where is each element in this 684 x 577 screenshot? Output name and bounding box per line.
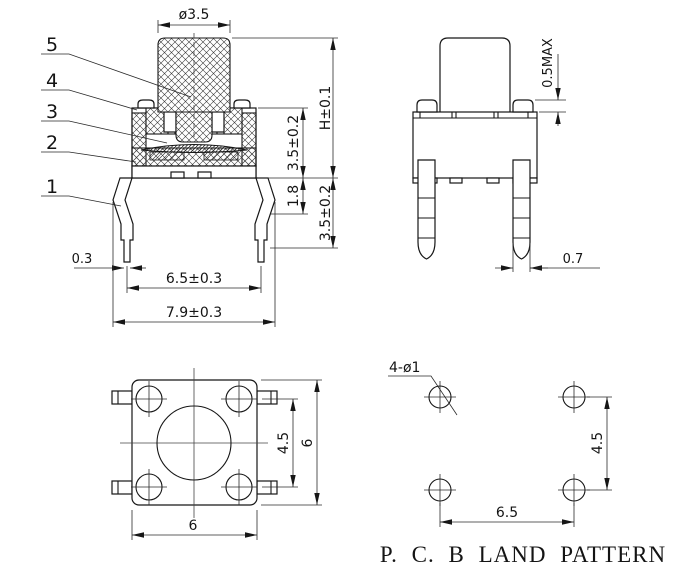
part-label-2: 2: [46, 132, 58, 154]
dim-top-body-width: 6: [189, 518, 198, 534]
dim-pin-thickness: 0.7: [563, 252, 584, 267]
part-label-1: 1: [46, 176, 58, 198]
top-tab-right-lower: [257, 481, 277, 494]
dim-stem-diameter: ø3.5: [179, 7, 210, 23]
dim-pin-length: 3.5±0.2: [318, 185, 334, 241]
part-label-4: 4: [46, 70, 58, 92]
dim-top-body-depth: 6: [300, 438, 316, 447]
dim-total-height: H±0.1: [318, 86, 334, 131]
dim-hole-callout: 4-ø1: [389, 360, 420, 376]
side-stem: [440, 38, 510, 112]
front-section-view: ø3.5 H±0.1 3.5±0.2 1.8 3.5±0.2 0.3 6.5±0…: [41, 7, 338, 327]
top-tab-left-upper: [112, 391, 132, 404]
part-label-3: 3: [46, 101, 58, 123]
base-bottom-plate: [132, 166, 256, 178]
contact-strip-left: [150, 152, 184, 160]
pcb-land-pattern-title: P. C. B LAND PATTERN: [380, 542, 666, 567]
top-tab-left-lower: [112, 481, 132, 494]
top-tab-right-upper: [257, 391, 277, 404]
pcb-land-pattern: 4-ø1 4.5 6.5 P. C. B LAND PATTERN: [380, 360, 666, 567]
hole-callout-leader: [388, 376, 457, 415]
bottom-notch-left: [171, 172, 184, 178]
pcb-holes: [424, 381, 590, 506]
part-label-5: 5: [46, 34, 58, 56]
drawing-sheet: ø3.5 H±0.1 3.5±0.2 1.8 3.5±0.2 0.3 6.5±0…: [0, 0, 684, 577]
dim-top-pin-row-pitch: 4.5: [276, 432, 292, 454]
terminal-pin-right: [255, 178, 275, 262]
contact-strip-right: [204, 152, 238, 160]
terminal-pin-left: [113, 178, 133, 262]
cover-boss-right: [234, 100, 250, 108]
flange-slot-left: [164, 112, 176, 132]
side-pin-left: [418, 160, 435, 259]
dim-pcb-pitch-vertical: 4.5: [590, 432, 606, 454]
dim-body-height: 3.5±0.2: [286, 115, 302, 171]
dim-pin-tip-width: 0.3: [72, 252, 93, 267]
side-boss-right: [513, 100, 533, 112]
dim-overall-width: 7.9±0.3: [166, 305, 222, 321]
side-tab-left: [450, 178, 462, 183]
side-boss-left: [417, 100, 437, 112]
dim-boss-height: 0.5MAX: [541, 38, 556, 88]
flange-slot-right: [212, 112, 224, 132]
dim-pin-span: 6.5±0.3: [166, 271, 222, 287]
cover-boss-left: [138, 100, 154, 108]
dim-pcb-pitch-horizontal: 6.5: [496, 505, 518, 521]
side-view: 0.5MAX 0.7: [413, 38, 600, 272]
bottom-notch-right: [198, 172, 211, 178]
dim-bend-height: 1.8: [286, 185, 302, 207]
side-pin-right: [513, 160, 530, 259]
side-tab-right: [487, 178, 499, 183]
tact-switch-technical-drawing: ø3.5 H±0.1 3.5±0.2 1.8 3.5±0.2 0.3 6.5±0…: [0, 0, 684, 577]
top-view: 4.5 6 6: [112, 368, 322, 540]
